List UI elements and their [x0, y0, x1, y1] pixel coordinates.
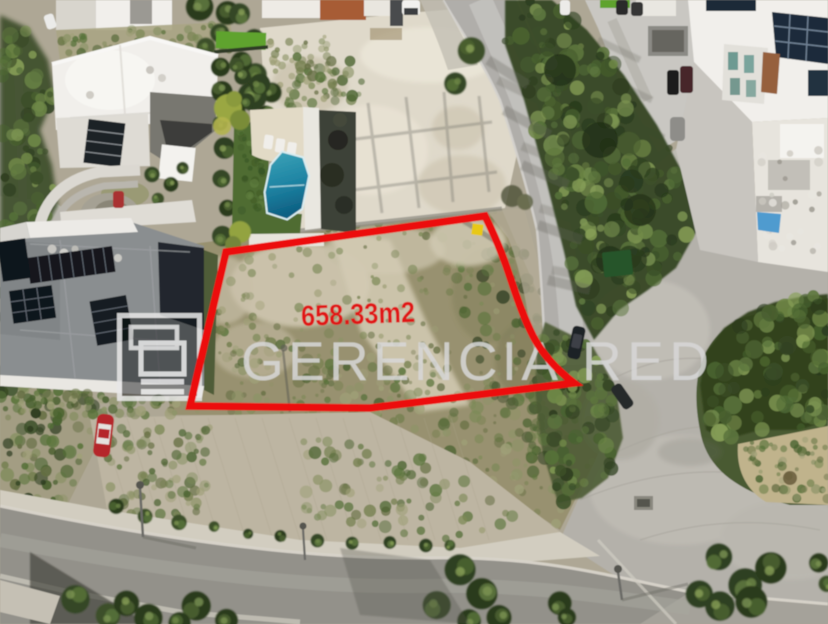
- svg-text:658.33m2: 658.33m2: [301, 297, 416, 333]
- svg-text:RED: RED: [582, 330, 709, 392]
- svg-text:GERENCIA: GERENCIA: [241, 330, 558, 392]
